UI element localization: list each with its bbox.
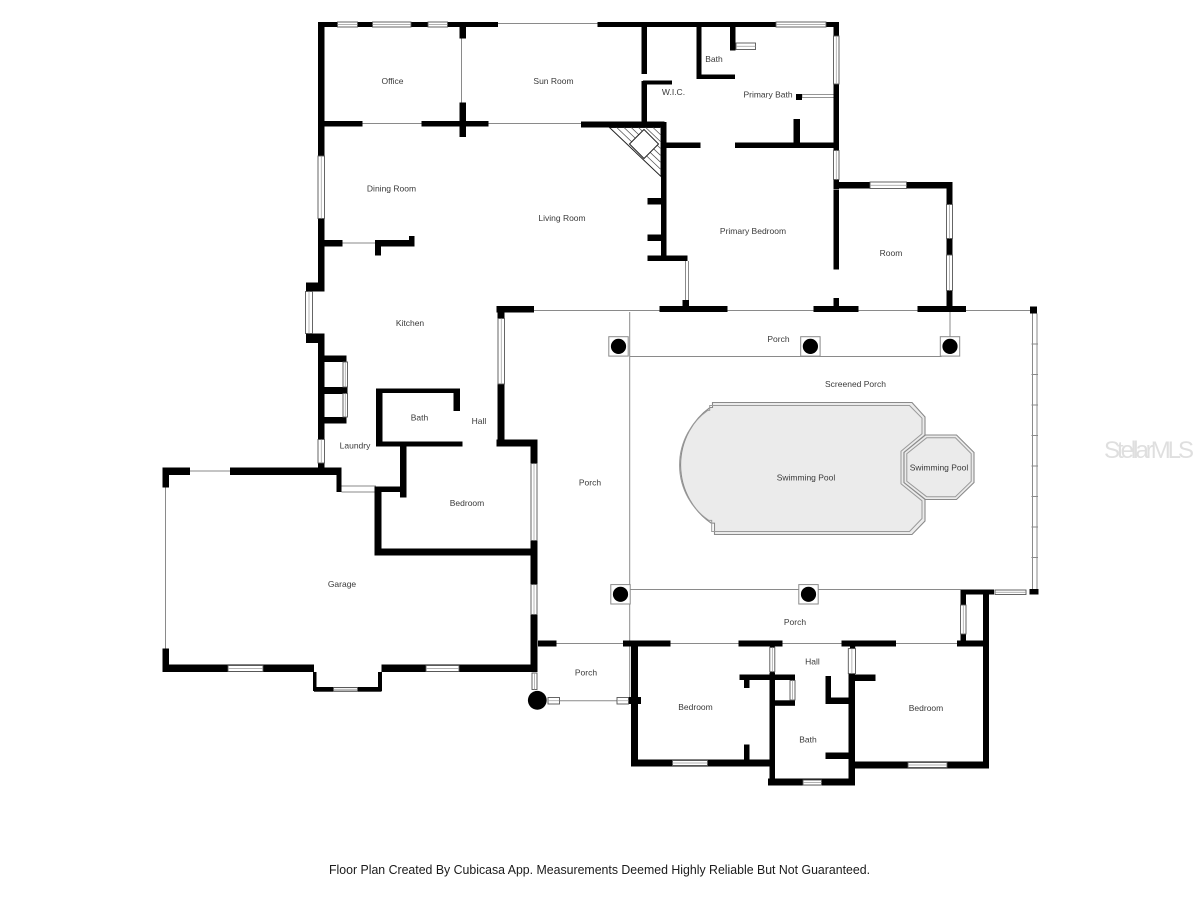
svg-text:Garage: Garage: [328, 579, 357, 589]
svg-text:Sun Room: Sun Room: [533, 76, 573, 86]
svg-text:Bedroom: Bedroom: [909, 703, 944, 713]
svg-text:StellarMLS: StellarMLS: [1104, 437, 1194, 464]
svg-text:Bath: Bath: [705, 54, 723, 64]
svg-text:Porch: Porch: [579, 478, 601, 488]
svg-text:Laundry: Laundry: [340, 441, 371, 451]
svg-text:Porch: Porch: [575, 668, 597, 678]
svg-text:Swimming Pool: Swimming Pool: [777, 473, 836, 483]
svg-text:Screened Porch: Screened Porch: [825, 379, 886, 389]
svg-text:Office: Office: [381, 76, 403, 86]
svg-text:Hall: Hall: [805, 657, 820, 667]
svg-text:Primary Bath: Primary Bath: [743, 90, 792, 100]
svg-text:Dining Room: Dining Room: [367, 184, 416, 194]
svg-text:Bedroom: Bedroom: [450, 498, 485, 508]
svg-text:Porch: Porch: [784, 617, 806, 627]
svg-text:Primary Bedroom: Primary Bedroom: [720, 226, 786, 236]
svg-text:Room: Room: [880, 248, 903, 258]
svg-text:Floor Plan Created By Cubicasa: Floor Plan Created By Cubicasa App. Meas…: [329, 862, 870, 877]
svg-text:Porch: Porch: [767, 334, 789, 344]
svg-text:Living Room: Living Room: [538, 213, 585, 223]
svg-text:Kitchen: Kitchen: [396, 318, 425, 328]
svg-text:Bath: Bath: [799, 735, 817, 745]
svg-text:Swimming Pool: Swimming Pool: [910, 463, 969, 473]
svg-text:Bath: Bath: [411, 413, 429, 423]
svg-text:Bedroom: Bedroom: [678, 702, 713, 712]
svg-text:W.I.C.: W.I.C.: [662, 87, 685, 97]
svg-text:Hall: Hall: [472, 416, 487, 426]
